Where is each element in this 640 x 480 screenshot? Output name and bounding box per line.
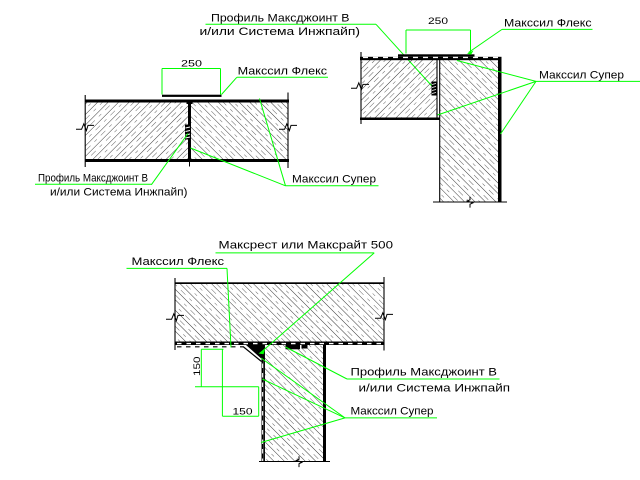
svg-text:и/или Система Инжпайп): и/или Система Инжпайп): [50, 187, 188, 199]
svg-text:Профиль Максджоинт В: Профиль Максджоинт В: [351, 366, 498, 378]
svg-text:Макссил Супер: Макссил Супер: [292, 174, 376, 186]
svg-text:Максрест или Максрайт 500: Максрест или Максрайт 500: [219, 240, 394, 252]
svg-text:Профиль Максджоинт В: Профиль Максджоинт В: [211, 13, 350, 25]
svg-text:250: 250: [428, 16, 448, 27]
svg-text:Макссил Супер: Макссил Супер: [539, 70, 624, 82]
svg-text:Макссил Флекс: Макссил Флекс: [504, 17, 592, 29]
svg-text:150: 150: [192, 357, 203, 377]
svg-text:Профиль Максджоинт В: Профиль Максджоинт В: [38, 172, 148, 184]
svg-text:и/или Система Инжпайп: и/или Система Инжпайп: [359, 382, 511, 394]
svg-text:Макссил Флекс: Макссил Флекс: [132, 256, 225, 268]
svg-text:Макссил Супер: Макссил Супер: [351, 405, 434, 417]
svg-text:и/или Система Инжпайп): и/или Система Инжпайп): [200, 26, 361, 38]
svg-text:Макссил Флекс: Макссил Флекс: [238, 66, 328, 78]
svg-text:150: 150: [233, 406, 253, 417]
svg-text:250: 250: [181, 59, 202, 70]
